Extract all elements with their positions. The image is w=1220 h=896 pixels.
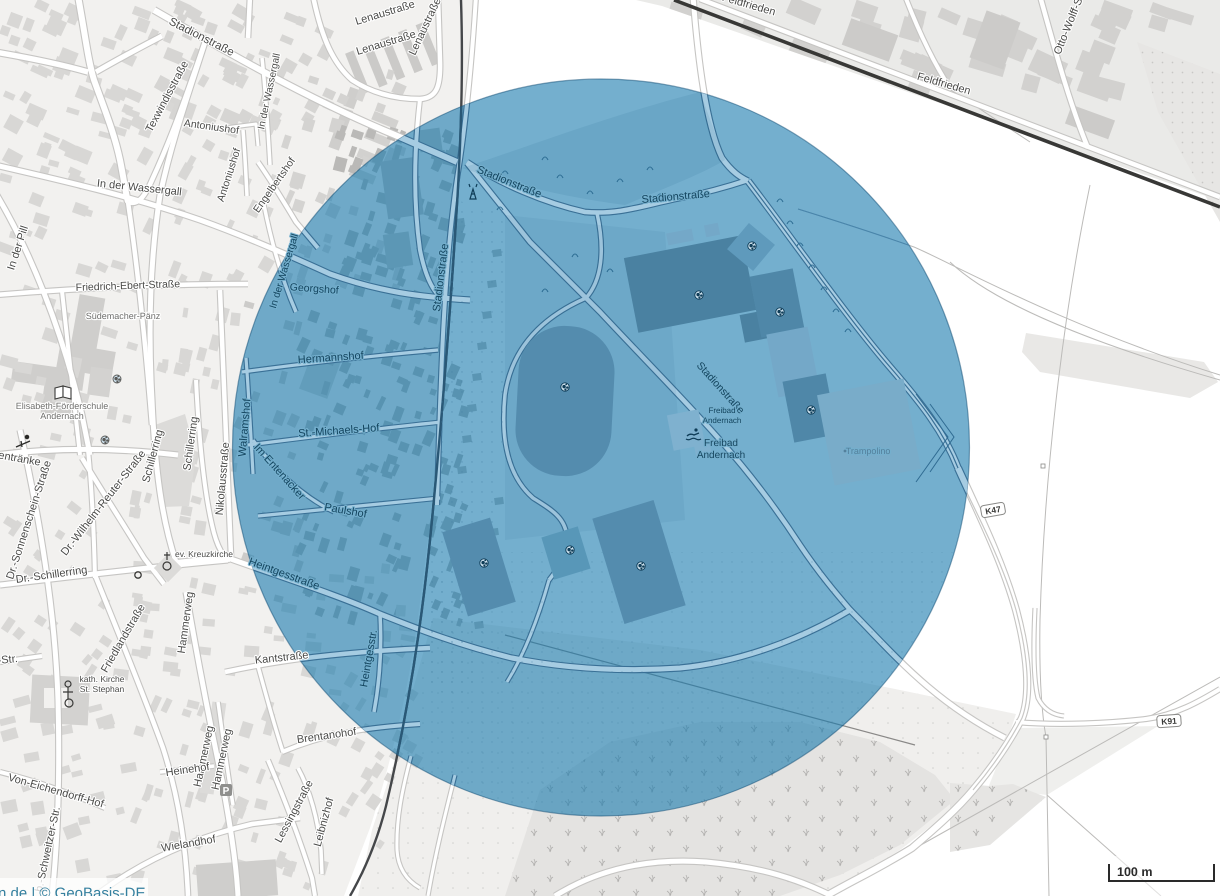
svg-text:n.de | © GeoBasis-DE: n.de | © GeoBasis-DE [0, 885, 146, 896]
svg-text:Andernach: Andernach [697, 450, 745, 461]
svg-text:K91: K91 [1161, 716, 1178, 727]
svg-text:Südemacher-Pänz: Südemacher-Pänz [86, 311, 161, 321]
svg-text:-Str.: -Str. [0, 653, 18, 667]
svg-text:Freibad: Freibad [704, 438, 738, 449]
svg-text:Trampolino: Trampolino [846, 446, 891, 456]
svg-text:Elisabeth-Förderschule: Elisabeth-Förderschule [16, 401, 109, 411]
svg-text:Andernach: Andernach [40, 411, 84, 421]
svg-text:P: P [223, 786, 230, 797]
svg-text:Andernach: Andernach [703, 416, 742, 425]
svg-text:ev. Kreuzkirche: ev. Kreuzkirche [175, 549, 233, 559]
svg-text:Freibad: Freibad [708, 406, 735, 415]
svg-text:St. Stephan: St. Stephan [80, 684, 125, 694]
svg-text:100 m: 100 m [1117, 865, 1152, 879]
svg-text:kath. Kirche: kath. Kirche [80, 674, 125, 684]
